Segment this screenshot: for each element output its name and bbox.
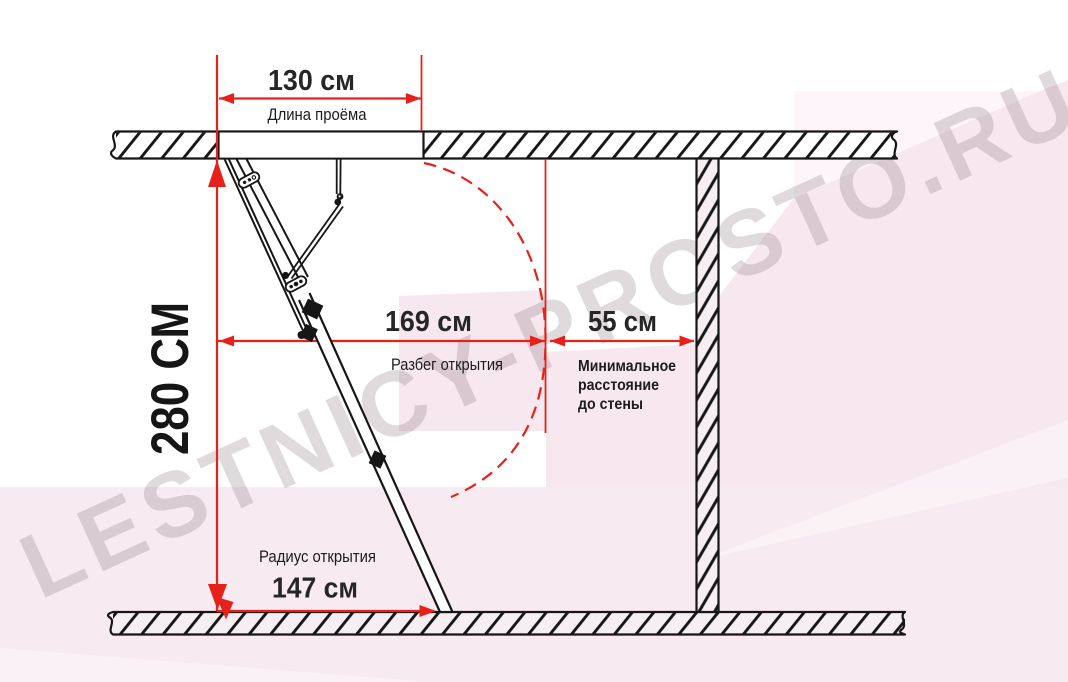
- svg-text:169 см: 169 см: [385, 306, 472, 338]
- svg-text:147 см: 147 см: [272, 573, 358, 605]
- svg-text:Радиус открытия: Радиус открытия: [259, 547, 376, 566]
- svg-text:55 см: 55 см: [588, 306, 657, 338]
- svg-text:до стены: до стены: [578, 396, 643, 413]
- svg-text:Разбег открытия: Разбег открытия: [391, 355, 503, 374]
- svg-text:280 СМ: 280 СМ: [141, 302, 200, 455]
- svg-text:расстояние: расстояние: [578, 377, 659, 394]
- svg-text:130 см: 130 см: [268, 65, 355, 97]
- svg-text:Длина проёма: Длина проёма: [268, 105, 367, 124]
- svg-text:Минимальное: Минимальное: [578, 358, 676, 375]
